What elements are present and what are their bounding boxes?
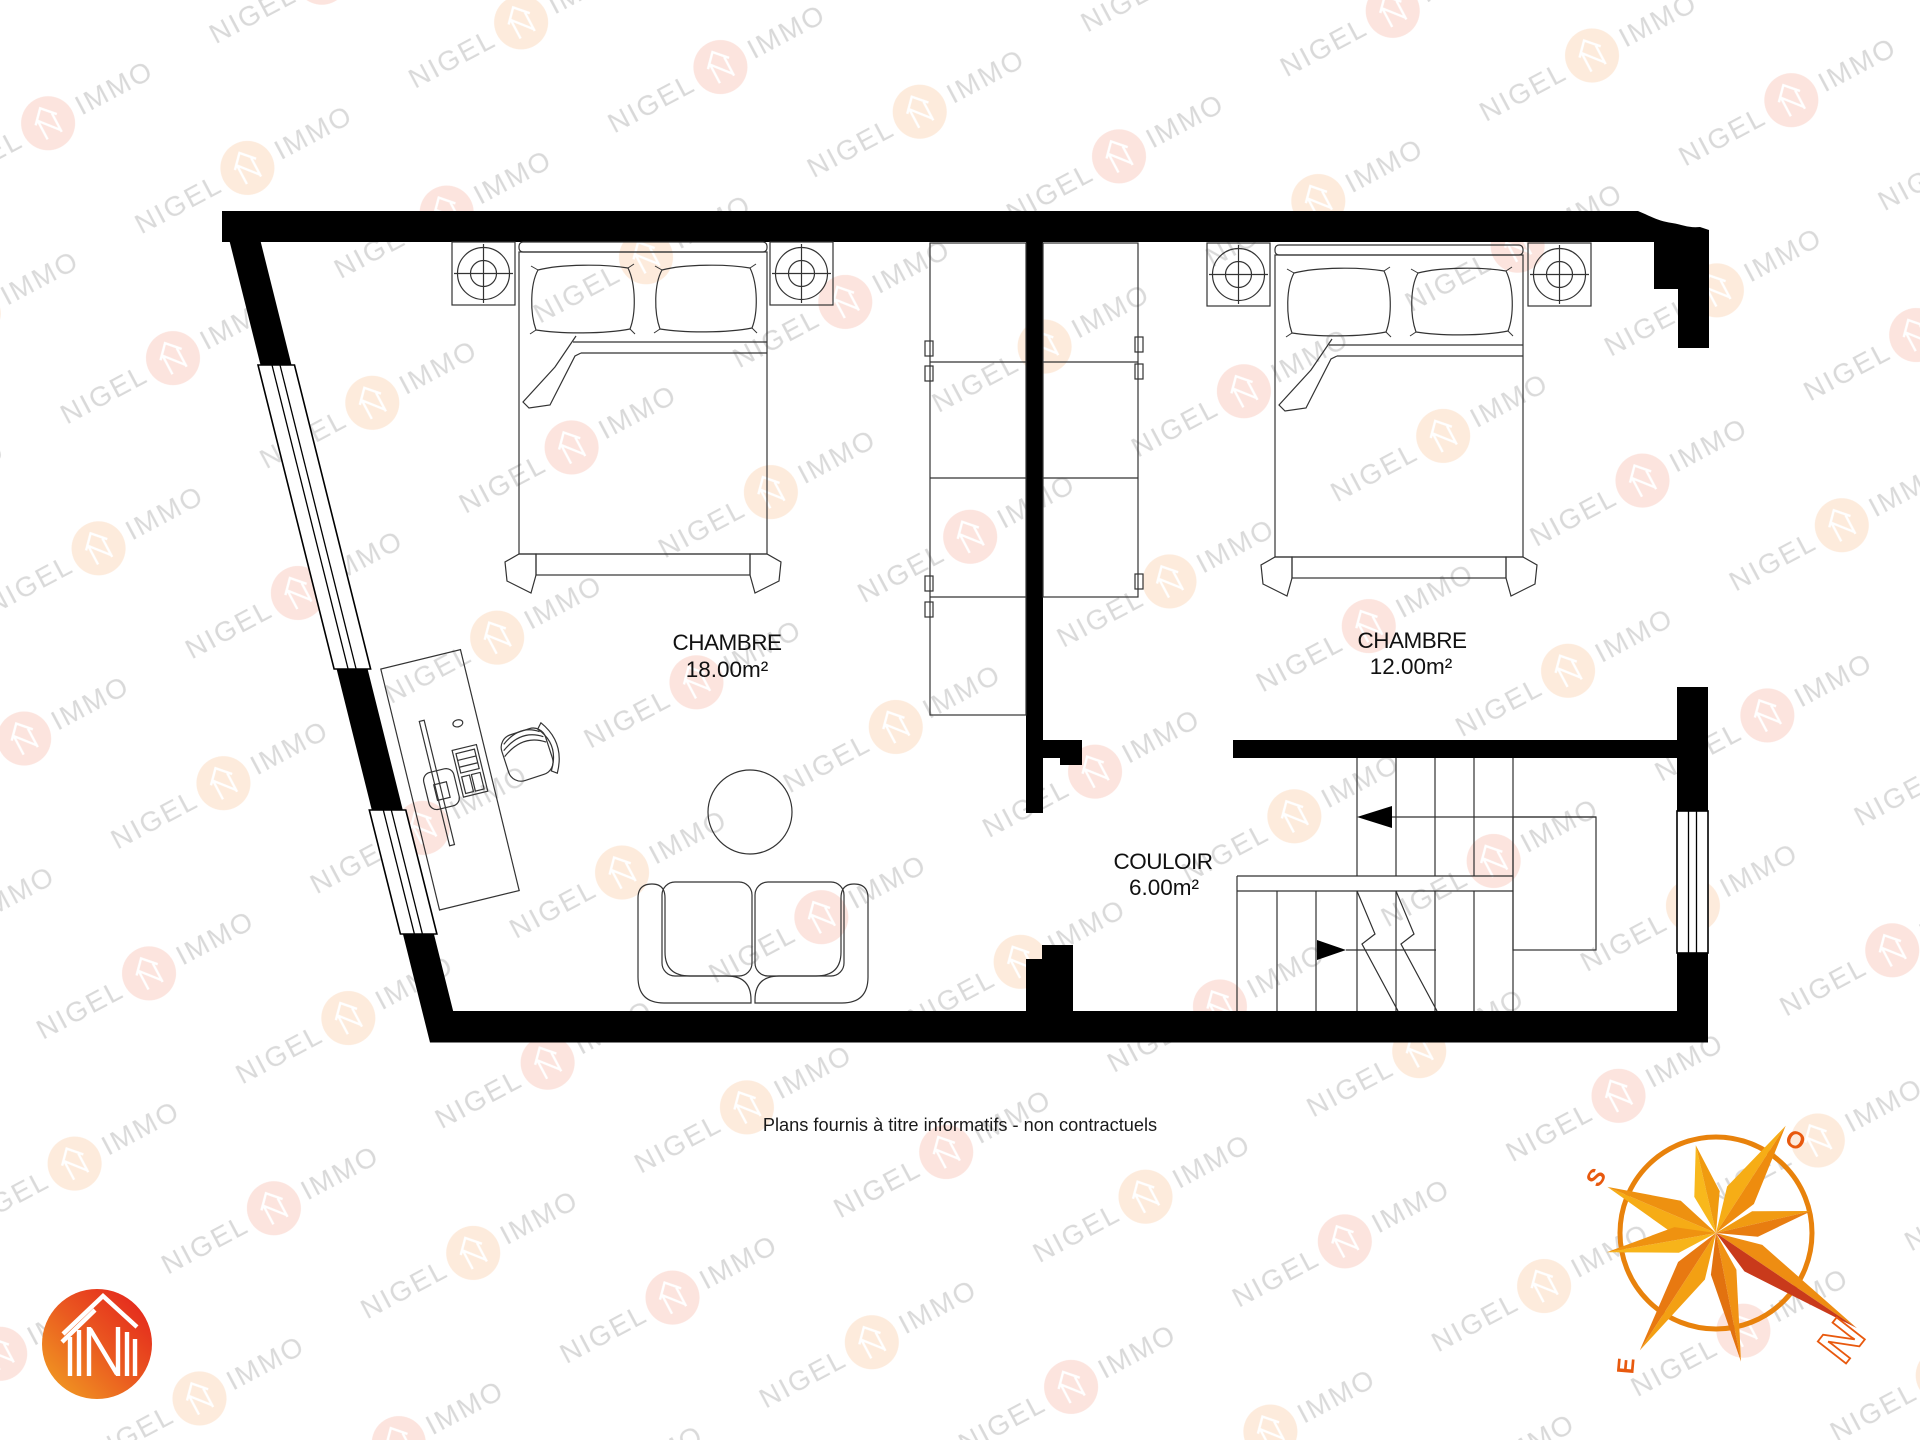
svg-text:Plans fournis à titre informat: Plans fournis à titre informatifs - non … [763,1115,1157,1135]
svg-text:6.00m²: 6.00m² [1129,875,1200,900]
svg-text:18.00m²: 18.00m² [686,657,769,682]
svg-text:CHAMBRE: CHAMBRE [672,630,782,655]
svg-text:E: E [1612,1357,1640,1375]
svg-text:CHAMBRE: CHAMBRE [1357,628,1467,653]
svg-text:12.00m²: 12.00m² [1370,654,1453,679]
svg-text:COULOIR: COULOIR [1113,849,1212,874]
